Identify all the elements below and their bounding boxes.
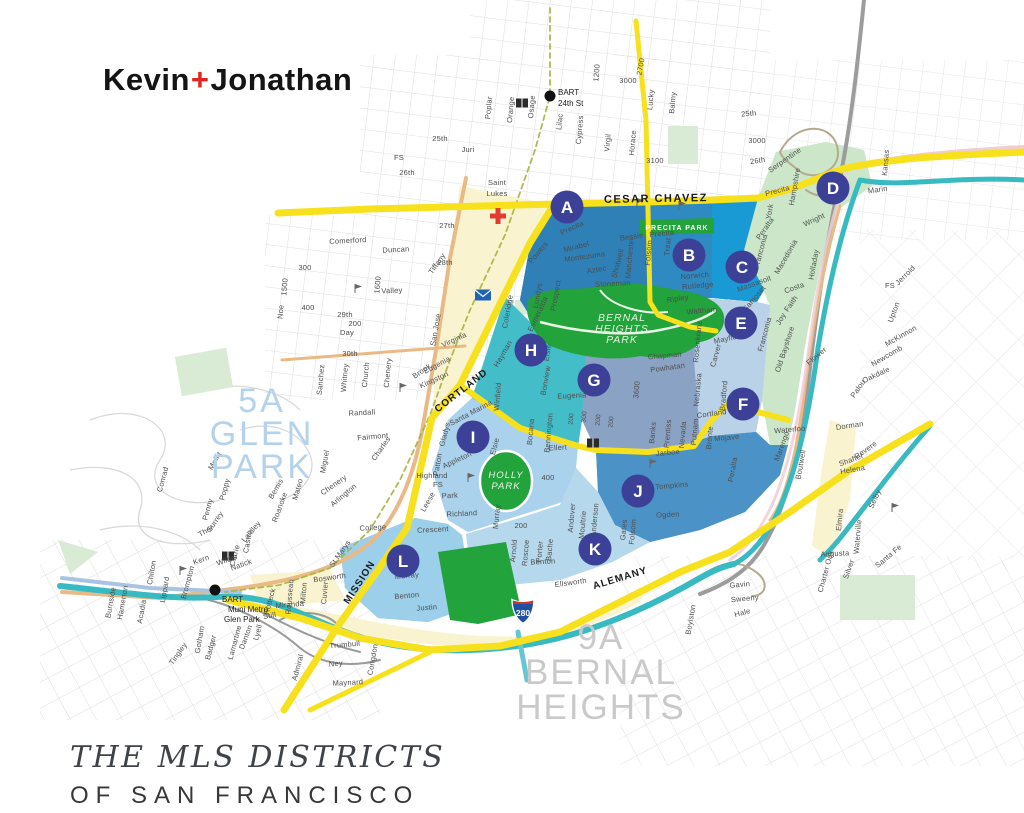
svg-text:E: E <box>735 314 746 333</box>
street-label: Lilac <box>554 113 564 130</box>
street-label: Saint <box>488 178 507 187</box>
street-label: FS <box>885 281 895 290</box>
street-label: 200 <box>514 521 527 530</box>
transit-label: Glen Park <box>224 615 261 624</box>
district-marker-i[interactable]: I <box>457 421 490 454</box>
svg-text:D: D <box>827 179 839 198</box>
svg-text:B: B <box>683 246 695 265</box>
svg-text:L: L <box>398 552 408 571</box>
grid-top <box>470 0 770 60</box>
street-label: Duncan <box>382 244 409 254</box>
street-label: 3000 <box>619 76 637 85</box>
transit-label: 24th St <box>558 99 584 108</box>
district-marker-d[interactable]: D <box>817 172 850 205</box>
street-label: Banks <box>647 421 658 444</box>
district-marker-g[interactable]: G <box>578 364 611 397</box>
svg-text:G: G <box>587 371 600 390</box>
post-office-icon <box>475 290 491 301</box>
street-label: Juri <box>462 145 475 154</box>
transit-label: BART <box>222 595 243 604</box>
street-label: Benton <box>530 556 555 566</box>
street-label: Balmy <box>667 91 678 114</box>
area-label-bernal-heights: BERNAL <box>525 653 677 692</box>
street-label: Maynard <box>332 677 363 688</box>
street-label: Leese <box>419 490 438 513</box>
street-label: Ogden <box>656 509 680 519</box>
street-label: 300 <box>298 263 311 272</box>
svg-text:C: C <box>736 258 748 277</box>
street-label: Elmira <box>834 508 845 532</box>
brand-name-left: Kevin <box>103 62 190 97</box>
street-label: 3100 <box>646 156 664 165</box>
street-label: 3000 <box>748 136 766 145</box>
street-label: 27th <box>439 221 454 230</box>
svg-text:H: H <box>525 341 537 360</box>
street-label: Lucky <box>645 89 656 110</box>
area-label-bernal-heights: 9A <box>578 618 625 657</box>
street-label: Park <box>442 491 459 501</box>
area-label-bernal-heights: HEIGHTS <box>516 688 686 727</box>
mls-district-map: { "brand": {"name_left": "Kevin", "plus"… <box>0 0 1024 813</box>
district-marker-k[interactable]: K <box>579 533 612 566</box>
street-label: Gavin <box>729 579 750 590</box>
park-label-bernal-heights-park: PARK <box>606 334 638 346</box>
street-label: Dorman <box>835 419 864 432</box>
street-label: Treat <box>662 237 673 257</box>
station-dot-icon <box>545 91 556 102</box>
svg-text:280: 280 <box>516 608 530 618</box>
street-label: 1200 <box>591 64 601 82</box>
street-label: Valley <box>381 285 403 295</box>
street-label: 1500 <box>279 278 289 296</box>
district-marker-f[interactable]: F <box>727 388 760 421</box>
street-label: 26th <box>399 168 414 177</box>
street-label: Conrad <box>155 466 170 493</box>
street-label: 300 <box>581 411 589 423</box>
street-label: Justin <box>416 602 438 613</box>
park-label-holly-park: PARK <box>491 481 520 492</box>
svg-text:A: A <box>561 198 573 217</box>
street-label: 200 <box>348 319 361 328</box>
svg-text:I: I <box>471 428 476 447</box>
street-label: Noe <box>275 304 285 319</box>
district-marker-j[interactable]: J <box>622 475 655 508</box>
svg-text:K: K <box>589 540 602 559</box>
map-title: THE MLS DISTRICTS OF SAN FRANCISCO <box>70 740 445 810</box>
district-marker-l[interactable]: L <box>387 545 420 578</box>
district-marker-a[interactable]: A <box>551 191 584 224</box>
station-dot-icon <box>210 585 221 596</box>
district-marker-e[interactable]: E <box>725 307 758 340</box>
svg-text:J: J <box>633 482 642 501</box>
map-title-line1: THE MLS DISTRICTS <box>70 740 445 775</box>
district-marker-h[interactable]: H <box>515 334 548 367</box>
street-label: Virgil <box>602 133 613 152</box>
street-label: 200 <box>568 413 576 425</box>
brand-logo: Kevin+Jonathan <box>103 62 352 98</box>
street-label: Crescent <box>417 524 450 535</box>
park-label-precita-park: PRECITA PARK <box>645 225 708 232</box>
street-label: Ellert <box>548 442 567 452</box>
transit-label: BART <box>558 88 579 97</box>
street-label: 200 <box>608 416 616 428</box>
street-label: 25th <box>432 134 447 143</box>
street-label: Day <box>340 328 354 337</box>
road-label-cesar-chavez: CESAR CHAVEZ <box>604 192 708 206</box>
grid-bayview <box>860 230 1024 560</box>
library-icon <box>587 439 599 448</box>
transit-label: Muni Metro <box>228 605 269 614</box>
street-label: 29th <box>337 310 352 319</box>
map-canvas: PoplarOrangeOsageLilacCypressVirgilHorac… <box>0 0 1024 813</box>
district-marker-b[interactable]: B <box>673 239 706 272</box>
street-label: Lukes <box>486 189 507 198</box>
street-label: Richland <box>446 508 477 519</box>
street-label: Stoneman <box>595 278 631 289</box>
brand-plus-icon: + <box>190 62 211 97</box>
street-label: 200 <box>595 414 603 426</box>
street-label: 400 <box>301 303 314 312</box>
map-title-line2: OF SAN FRANCISCO <box>70 782 445 810</box>
street-label: 400 <box>541 473 554 482</box>
street-label: Randall <box>348 407 375 417</box>
street-label: FS <box>394 153 404 162</box>
street-label: FS <box>433 480 443 489</box>
street-label: 25th <box>741 108 757 118</box>
park-label-holly-park: HOLLY <box>488 470 523 481</box>
interstate-280-shield: 280 <box>512 600 534 624</box>
district-marker-c[interactable]: C <box>726 251 759 284</box>
street-label: 30th <box>342 349 357 358</box>
highway-shield: 280 <box>512 600 534 624</box>
street-label: College <box>359 522 386 532</box>
area-label-glen-park: PARK <box>211 448 313 486</box>
street-label: Miguel <box>318 449 331 474</box>
brand-name-right: Jonathan <box>211 62 353 97</box>
street-label: Ney <box>328 658 343 668</box>
street-label: 3600 <box>631 381 641 399</box>
svg-text:F: F <box>738 395 748 414</box>
